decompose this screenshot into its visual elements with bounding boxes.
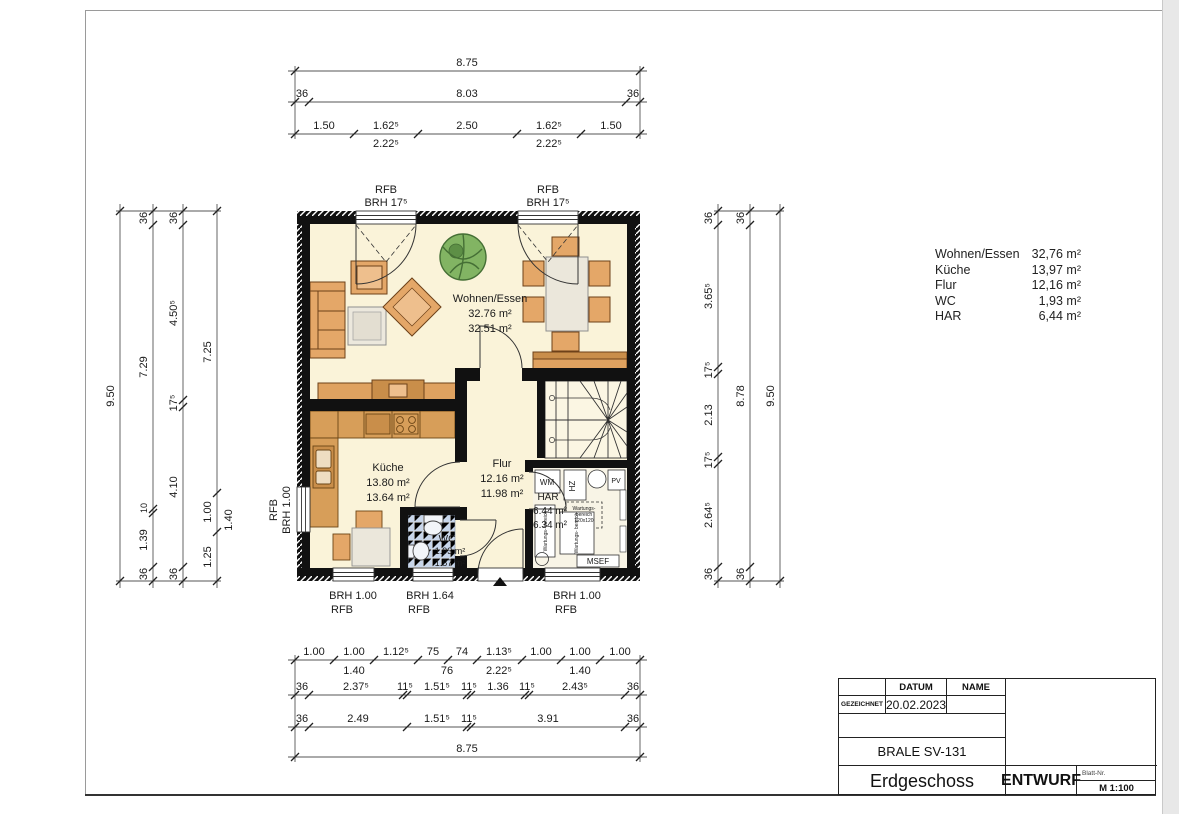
window-bottom-mid — [413, 568, 453, 581]
dim-label: 9.50 — [105, 385, 117, 406]
window-left — [297, 487, 310, 532]
window-top-right — [518, 211, 578, 224]
room-area: 1.87 m² — [435, 558, 466, 568]
dim-label: 2.37⁵ — [343, 681, 369, 693]
dim-label: 76 — [441, 665, 453, 677]
dim-label: 17⁵ — [703, 362, 715, 379]
window-top-left — [356, 211, 416, 224]
title-block-cell — [839, 714, 1006, 738]
dim-label: 36 — [703, 568, 715, 580]
room-area: 13.64 m² — [366, 492, 410, 504]
window-bottom-right — [545, 568, 600, 581]
table-row: HAR 6,44 m² — [935, 309, 1081, 325]
dim-label: 1.50 — [313, 120, 334, 132]
dim-label: 7.29 — [138, 356, 150, 377]
pv-label: PV — [611, 478, 621, 485]
window-bottom-left — [333, 568, 374, 581]
dining-chair — [589, 297, 610, 322]
window-label: RFB — [408, 604, 430, 616]
dim-label: 36 — [735, 212, 747, 224]
room-area: 32.76 m² — [468, 308, 512, 320]
dim-label: 1.62⁵ — [536, 120, 562, 132]
dining-chair — [589, 261, 610, 286]
room-label: Küche — [372, 462, 403, 474]
room-area: 13.80 m² — [366, 477, 410, 489]
sideboard-dining — [533, 352, 627, 370]
datum-header: DATUM — [886, 679, 947, 696]
room-area: 12.16 m² — [480, 473, 524, 485]
dim-label: 2.50 — [456, 120, 477, 132]
dim-label: 8.78 — [735, 385, 747, 406]
room-name: HAR — [935, 309, 961, 325]
dim-label: 1.50 — [600, 120, 621, 132]
dim-label: 3.91 — [537, 713, 558, 725]
room-area: 6.34 m² — [533, 520, 568, 531]
title-block-cell — [1006, 679, 1157, 766]
har-cabinet-label: Wartungs- bereich — [543, 510, 549, 551]
dim-label: 1.00 — [202, 501, 214, 522]
room-area-value: 13,97 m² — [1032, 263, 1081, 279]
window-label: RFB — [268, 499, 280, 521]
dim-label: 1.13⁵ — [486, 646, 512, 658]
room-area-value: 32,76 m² — [1032, 247, 1081, 263]
dim-label: 17⁵ — [703, 452, 715, 469]
dim-label: 8.03 — [456, 88, 477, 100]
room-name: WC — [935, 294, 956, 310]
dim-label: 1.00 — [343, 646, 364, 658]
sideboard-living — [318, 380, 456, 401]
kitchen-chair — [356, 511, 382, 529]
kitchen-table — [352, 528, 390, 566]
dim-label: 2.22⁵ — [373, 138, 399, 150]
dim-label: 1.00 — [569, 646, 590, 658]
dim-label: 36 — [296, 88, 308, 100]
plant-icon — [440, 234, 486, 280]
room-area: 32.51 m² — [468, 323, 512, 335]
room-area-value: 6,44 m² — [1039, 309, 1081, 325]
name-header: NAME — [947, 679, 1006, 696]
dim-label: 2.64⁵ — [703, 502, 715, 528]
dim-label: 1.00 — [609, 646, 630, 658]
dim-label: 11⁵ — [397, 681, 413, 693]
room-label: WC — [439, 534, 456, 545]
dim-label: 2.49 — [347, 713, 368, 725]
dim-label: 36 — [627, 681, 639, 693]
table-row: Wohnen/Essen 32,76 m² — [935, 247, 1081, 263]
window-label: BRH 1.00 — [553, 590, 601, 602]
cooktop — [394, 414, 418, 434]
hz-label: HZ — [568, 481, 577, 492]
room-area-value: 1,93 m² — [1039, 294, 1081, 310]
dim-label: 1.40 — [223, 509, 235, 530]
dim-label: 4.50⁵ — [168, 300, 180, 326]
dim-label: 1.51⁵ — [424, 681, 450, 693]
dim-label: 17⁵ — [168, 395, 180, 412]
window-label: BRH 17⁵ — [364, 197, 407, 209]
title-block: DATUM NAME GEZEICHNET 20.02.2023 BRALE S… — [838, 678, 1156, 795]
window-label: RFB — [331, 604, 353, 616]
room-name: Wohnen/Essen — [935, 247, 1020, 263]
har-cabinet-label: Wartungs- bereich — [574, 512, 580, 553]
dim-label: 36 — [296, 713, 308, 725]
dim-label: 36 — [296, 681, 308, 693]
dim-label: 11⁵ — [461, 713, 477, 725]
kitchen-chair — [333, 534, 350, 560]
boiler-circle — [588, 470, 606, 488]
room-label: HAR — [537, 492, 558, 503]
dim-label: 1.00 — [530, 646, 551, 658]
dim-label: 1.00 — [303, 646, 324, 658]
dim-label: 1.36 — [487, 681, 508, 693]
kitchen-sink — [313, 446, 334, 488]
drawing-sheet: Wohnen/Essen 32.76 m² 32.51 m² Küche 13.… — [0, 0, 1179, 814]
title-block-cell — [839, 679, 886, 696]
dim-label: 36 — [168, 212, 180, 224]
wc-toilet — [408, 542, 429, 560]
dim-label: 36 — [168, 568, 180, 580]
dim-label: 1.25 — [202, 546, 214, 567]
dim-label: 2.43⁵ — [562, 681, 588, 693]
sheet-title: Erdgeschoss — [839, 766, 1006, 796]
dim-label: 36 — [138, 212, 150, 224]
drawn-name-cell — [947, 696, 1006, 714]
project-number: BRALE SV-131 — [839, 738, 1006, 766]
dim-label: 4.10 — [168, 476, 180, 497]
status-label: ENTWURF — [1006, 766, 1077, 796]
table-row: Flur 12,16 m² — [935, 278, 1081, 294]
staircase — [545, 381, 627, 458]
room-name: Küche — [935, 263, 970, 279]
room-label: Flur — [493, 458, 512, 470]
window-label: RFB — [537, 184, 559, 196]
window-label: RFB — [375, 184, 397, 196]
room-area: 11.98 m² — [481, 488, 524, 500]
dim-label: 36 — [627, 713, 639, 725]
dim-label: 2.22⁵ — [536, 138, 562, 150]
dim-label: 2.13 — [703, 404, 715, 425]
wm-label: WM — [540, 478, 555, 487]
dining-table — [546, 257, 588, 331]
room-area: 6.44 m² — [533, 506, 568, 517]
table-row: WC 1,93 m² — [935, 294, 1081, 310]
dim-label: 36 — [627, 88, 639, 100]
dim-label: 8.75 — [456, 743, 477, 755]
dim-label: 75 — [427, 646, 439, 658]
dim-label: 10 — [139, 503, 149, 513]
dim-label: 1.40 — [569, 665, 590, 677]
dim-label: 1.62⁵ — [373, 120, 399, 132]
dim-label: 36 — [703, 212, 715, 224]
dim-label: 11⁵ — [519, 681, 535, 693]
sofa — [310, 282, 345, 358]
dim-label: 1.51⁵ — [424, 713, 450, 725]
dim-label: 36 — [735, 568, 747, 580]
room-area-value: 12,16 m² — [1032, 278, 1081, 294]
window-label: BRH 17⁵ — [526, 197, 569, 209]
gezeichnet-label: GEZEICHNET — [839, 696, 886, 714]
room-name: Flur — [935, 278, 957, 294]
oven — [366, 414, 390, 434]
msef-label: MSEF — [587, 557, 609, 566]
dim-label: 3.65⁵ — [703, 283, 715, 309]
room-area: 1.93 m² — [435, 546, 466, 556]
dim-label: 9.50 — [765, 385, 777, 406]
dim-label: 36 — [138, 568, 150, 580]
dining-chair — [552, 332, 579, 351]
window-label: BRH 1.00 — [281, 486, 293, 534]
wc-sink — [424, 515, 443, 535]
dim-label: 1.12⁵ — [383, 646, 409, 658]
table-row: Küche 13,97 m² — [935, 263, 1081, 279]
window-label: BRH 1.64 — [406, 590, 454, 602]
dim-label: 11⁵ — [461, 681, 477, 693]
window-label: RFB — [555, 604, 577, 616]
dim-label: 2.22⁵ — [486, 665, 512, 677]
dim-label: 1.39 — [138, 529, 150, 550]
room-area-table: Wohnen/Essen 32,76 m² Küche 13,97 m² Flu… — [935, 247, 1081, 325]
scale-label: M 1:100 — [1077, 781, 1156, 796]
dim-label: 1.40 — [343, 665, 364, 677]
dim-label: 74 — [456, 646, 468, 658]
blatt-nr-label: Blatt-Nr. — [1077, 766, 1156, 781]
window-label: BRH 1.00 — [329, 590, 377, 602]
drawn-date: 20.02.2023 — [886, 696, 947, 714]
room-label: Wohnen/Essen — [453, 293, 527, 305]
dim-label: 8.75 — [456, 57, 477, 69]
coffee-table — [348, 307, 386, 345]
dim-label: 7.25 — [202, 341, 214, 362]
